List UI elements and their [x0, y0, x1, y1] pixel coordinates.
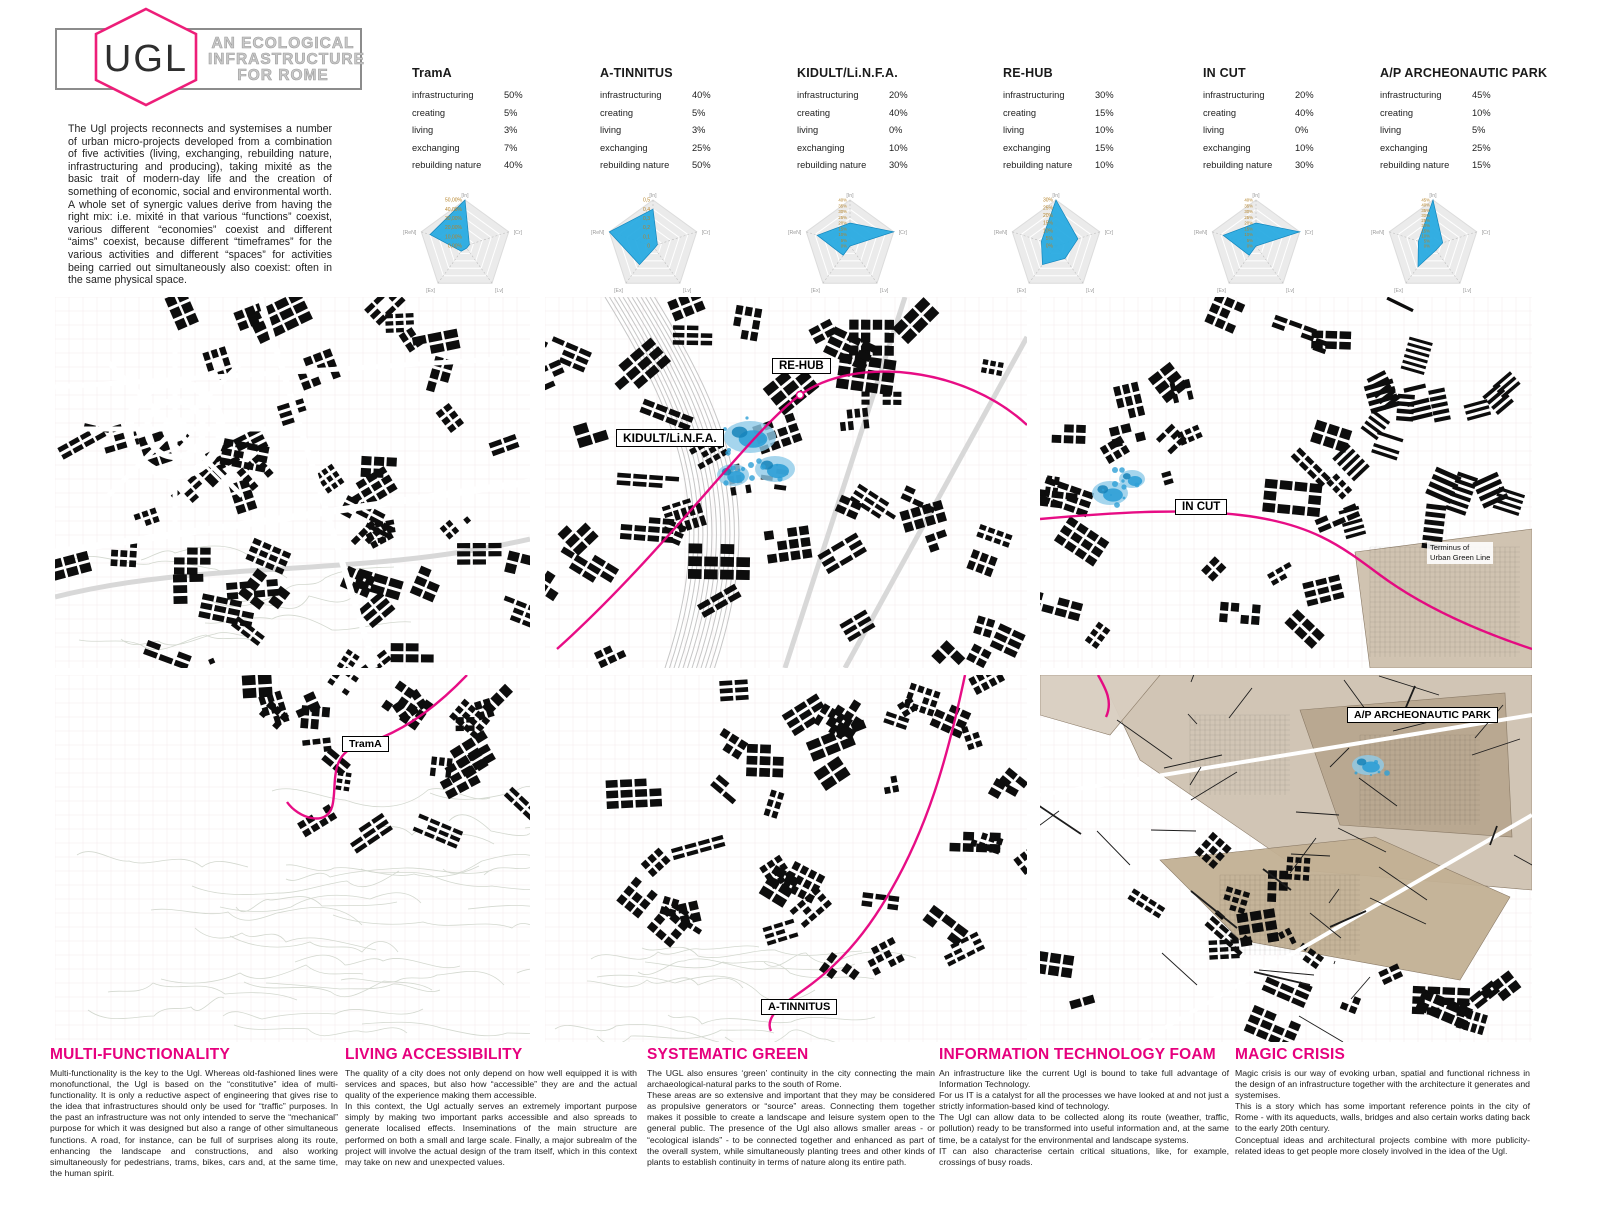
metric-value: 50% [504, 90, 554, 108]
svg-text:5%: 5% [1247, 238, 1253, 243]
section-column: MULTI-FUNCTIONALITYMulti-functionality i… [50, 1046, 338, 1179]
svg-text:15%: 15% [1043, 221, 1054, 227]
map-panel-3 [1040, 297, 1532, 668]
radar-chart: 50,00%40,00%30,00%20,00%10,00%0,00%[In][… [400, 190, 530, 298]
metric-label: living [600, 125, 692, 143]
metric-label: living [1003, 125, 1095, 143]
metric-label: living [1203, 125, 1295, 143]
svg-text:35%: 35% [1244, 203, 1253, 208]
svg-text:0,00%: 0,00% [448, 244, 463, 250]
metric-label: creating [1380, 108, 1472, 126]
metric-value: 0% [1295, 125, 1345, 143]
radar-chart: 30%25%20%15%10%5%0%[In][Cr][Lv][Ex][ReN] [991, 190, 1121, 298]
project-column: A/P ARCHEONAUTIC PARKinfrastructuring45%… [1380, 66, 1595, 178]
metric-label: exchanging [1003, 143, 1095, 161]
metric-row: infrastructuring50% [412, 90, 627, 108]
metric-value: 10% [1295, 143, 1345, 161]
svg-text:5%: 5% [1046, 236, 1054, 242]
metric-value: 40% [889, 108, 939, 126]
svg-text:10%: 10% [1244, 232, 1253, 237]
metric-value: 15% [1472, 160, 1522, 178]
metric-label: exchanging [1380, 143, 1472, 161]
section-column: LIVING ACCESSIBILITYThe quality of a cit… [345, 1046, 637, 1168]
section-body: The quality of a city does not only depe… [345, 1068, 637, 1168]
metric-label: infrastructuring [600, 90, 692, 108]
metric-label: infrastructuring [1380, 90, 1472, 108]
svg-text:30%: 30% [838, 209, 847, 214]
logo-subtitle-line: AN ECOLOGICAL [208, 36, 358, 52]
svg-text:20,00%: 20,00% [445, 225, 463, 231]
metric-row: creating5% [600, 108, 815, 126]
svg-text:20%: 20% [838, 221, 847, 226]
metric-value: 45% [1472, 90, 1522, 108]
svg-text:[Ex]: [Ex] [1217, 288, 1226, 294]
project-title: KIDULT/Li.N.F.A. [797, 66, 1012, 80]
metric-label: creating [1003, 108, 1095, 126]
svg-text:[ReN]: [ReN] [994, 230, 1008, 236]
logo-text: UGL [104, 38, 188, 80]
map-label: IN CUT [1175, 499, 1227, 515]
section-body: Multi-functionality is the key to the Ug… [50, 1068, 338, 1179]
metric-label: creating [600, 108, 692, 126]
metric-value: 40% [692, 90, 742, 108]
svg-text:0,4: 0,4 [643, 207, 650, 213]
svg-text:25%: 25% [1244, 215, 1253, 220]
svg-text:[Lv]: [Lv] [495, 288, 504, 294]
svg-text:[ReN]: [ReN] [788, 230, 802, 236]
project-column: TramAinfrastructuring50%creating5%living… [412, 66, 627, 178]
svg-text:10%: 10% [838, 232, 847, 237]
metric-row: rebuilding nature40% [412, 160, 627, 178]
svg-text:5%: 5% [841, 238, 847, 243]
svg-text:50,00%: 50,00% [445, 198, 463, 204]
ugl-hexagon-logo-icon: UGL [88, 7, 204, 107]
svg-text:30%: 30% [1244, 209, 1253, 214]
project-column: A-TINNITUSinfrastructuring40%creating5%l… [600, 66, 815, 178]
metric-label: exchanging [1203, 143, 1295, 161]
metric-value: 5% [1472, 125, 1522, 143]
section-title: SYSTEMATIC GREEN [647, 1046, 935, 1064]
metric-row: infrastructuring20% [797, 90, 1012, 108]
metric-row: rebuilding nature15% [1380, 160, 1595, 178]
svg-text:[Lv]: [Lv] [1286, 288, 1295, 294]
svg-text:0,1: 0,1 [643, 234, 650, 240]
metric-row: creating10% [1380, 108, 1595, 126]
metric-row: living3% [600, 125, 815, 143]
svg-text:[Lv]: [Lv] [880, 288, 889, 294]
metric-value: 40% [1295, 108, 1345, 126]
section-title: INFORMATION TECHNOLOGY FOAM [939, 1046, 1229, 1064]
section-title: LIVING ACCESSIBILITY [345, 1046, 637, 1064]
metric-label: infrastructuring [412, 90, 504, 108]
metric-row: exchanging25% [1380, 143, 1595, 161]
svg-text:[Cr]: [Cr] [514, 230, 523, 236]
poster-page: UGL AN ECOLOGICAL INFRASTRUCTURE FOR ROM… [0, 0, 1609, 1206]
map-label: A/P ARCHEONAUTIC PARK [1347, 707, 1498, 723]
svg-text:[ReN]: [ReN] [591, 230, 605, 236]
metric-value: 7% [504, 143, 554, 161]
svg-text:0%: 0% [1424, 244, 1430, 249]
metric-value: 20% [1295, 90, 1345, 108]
section-title: MULTI-FUNCTIONALITY [50, 1046, 338, 1064]
metric-row: infrastructuring45% [1380, 90, 1595, 108]
svg-text:[ReN]: [ReN] [1371, 230, 1385, 236]
svg-text:0,3: 0,3 [643, 216, 650, 222]
metric-label: living [797, 125, 889, 143]
svg-text:[Cr]: [Cr] [702, 230, 711, 236]
svg-text:0%: 0% [1046, 244, 1054, 250]
svg-text:[Cr]: [Cr] [899, 230, 908, 236]
metric-row: infrastructuring40% [600, 90, 815, 108]
radar-chart: 40%35%30%25%20%15%10%5%0%[In][Cr][Lv][Ex… [1191, 190, 1321, 298]
map-panel-5 [545, 675, 1027, 1042]
metric-value: 10% [889, 143, 939, 161]
section-column: SYSTEMATIC GREENThe UGL also ensures ‘gr… [647, 1046, 935, 1168]
svg-text:[In]: [In] [846, 193, 854, 199]
svg-text:40,00%: 40,00% [445, 207, 463, 213]
section-body: The UGL also ensures ‘green’ continuity … [647, 1068, 935, 1168]
metric-label: exchanging [600, 143, 692, 161]
metric-value: 5% [692, 108, 742, 126]
metric-value: 15% [1095, 143, 1145, 161]
metric-row: living0% [797, 125, 1012, 143]
metric-label: exchanging [797, 143, 889, 161]
metric-row: creating15% [1003, 108, 1218, 126]
svg-text:0%: 0% [841, 244, 847, 249]
metric-value: 30% [1295, 160, 1345, 178]
svg-text:10,00%: 10,00% [445, 234, 463, 240]
project-title: A-TINNITUS [600, 66, 815, 80]
metric-value: 30% [1095, 90, 1145, 108]
metric-label: rebuilding nature [1203, 160, 1295, 178]
map-label: TramA [342, 736, 389, 752]
svg-text:[ReN]: [ReN] [1194, 230, 1208, 236]
metric-value: 3% [692, 125, 742, 143]
section-body: Magic crisis is our way of evoking urban… [1235, 1068, 1530, 1157]
metric-label: rebuilding nature [1380, 160, 1472, 178]
metric-label: creating [412, 108, 504, 126]
metric-row: rebuilding nature10% [1003, 160, 1218, 178]
map-label: RE-HUB [772, 358, 831, 374]
metric-row: living3% [412, 125, 627, 143]
logo-subtitle-line: FOR ROME [208, 68, 358, 84]
metric-value: 50% [692, 160, 742, 178]
svg-text:[ReN]: [ReN] [403, 230, 417, 236]
metric-row: creating5% [412, 108, 627, 126]
svg-text:[Cr]: [Cr] [1105, 230, 1114, 236]
svg-text:20%: 20% [1244, 221, 1253, 226]
section-column: INFORMATION TECHNOLOGY FOAMAn infrastruc… [939, 1046, 1229, 1168]
svg-text:[In]: [In] [1052, 193, 1060, 199]
intro-paragraph: The Ugl projects reconnects and systemis… [68, 123, 332, 287]
metric-value: 20% [889, 90, 939, 108]
svg-text:25%: 25% [1043, 205, 1054, 211]
metric-value: 40% [504, 160, 554, 178]
metric-label: exchanging [412, 143, 504, 161]
map-label: A-TINNITUS [761, 999, 837, 1015]
svg-text:0%: 0% [1247, 244, 1253, 249]
map-panel-4 [55, 675, 530, 1042]
svg-text:[In]: [In] [1252, 193, 1260, 199]
svg-text:[Ex]: [Ex] [614, 288, 623, 294]
svg-text:[Lv]: [Lv] [1086, 288, 1095, 294]
metric-row: exchanging15% [1003, 143, 1218, 161]
svg-text:35%: 35% [838, 203, 847, 208]
svg-text:25%: 25% [838, 215, 847, 220]
metric-row: living10% [1003, 125, 1218, 143]
metric-row: exchanging7% [412, 143, 627, 161]
metric-value: 10% [1095, 160, 1145, 178]
metric-label: rebuilding nature [600, 160, 692, 178]
metric-row: rebuilding nature30% [797, 160, 1012, 178]
metric-row: exchanging25% [600, 143, 815, 161]
svg-text:0,2: 0,2 [643, 225, 650, 231]
logo-subtitle-line: INFRASTRUCTURE [208, 52, 358, 68]
metric-label: living [412, 125, 504, 143]
metric-label: infrastructuring [1003, 90, 1095, 108]
project-column: RE-HUBinfrastructuring30%creating15%livi… [1003, 66, 1218, 178]
metric-row: rebuilding nature50% [600, 160, 815, 178]
svg-text:[Cr]: [Cr] [1482, 230, 1491, 236]
svg-text:15%: 15% [1244, 226, 1253, 231]
svg-text:30,00%: 30,00% [445, 216, 463, 222]
radar-chart: 40%35%30%25%20%15%10%5%0%[In][Cr][Lv][Ex… [785, 190, 915, 298]
map-panel-1 [55, 297, 530, 668]
svg-text:[Ex]: [Ex] [1017, 288, 1026, 294]
metric-value: 25% [1472, 143, 1522, 161]
map-panel-6 [1040, 675, 1532, 1042]
metric-value: 25% [692, 143, 742, 161]
map-panel-2 [545, 297, 1027, 668]
metric-value: 3% [504, 125, 554, 143]
metric-value: 30% [889, 160, 939, 178]
project-title: TramA [412, 66, 627, 80]
project-title: RE-HUB [1003, 66, 1218, 80]
metric-row: exchanging10% [797, 143, 1012, 161]
metric-row: creating40% [797, 108, 1012, 126]
map-note-terminus: Terminus of Urban Green Line [1427, 542, 1493, 564]
radar-chart: 0,50,40,30,20,10[In][Cr][Lv][Ex][ReN] [588, 190, 718, 298]
metric-label: rebuilding nature [797, 160, 889, 178]
svg-text:[Ex]: [Ex] [811, 288, 820, 294]
svg-text:[Lv]: [Lv] [683, 288, 692, 294]
section-title: MAGIC CRISIS [1235, 1046, 1530, 1064]
project-title: A/P ARCHEONAUTIC PARK [1380, 66, 1595, 80]
section-column: MAGIC CRISISMagic crisis is our way of e… [1235, 1046, 1530, 1157]
metric-label: creating [797, 108, 889, 126]
metric-label: rebuilding nature [1003, 160, 1095, 178]
svg-text:0: 0 [647, 244, 650, 250]
metric-value: 10% [1472, 108, 1522, 126]
metric-label: infrastructuring [1203, 90, 1295, 108]
metric-label: rebuilding nature [412, 160, 504, 178]
svg-text:[In]: [In] [1429, 193, 1437, 199]
logo-subtitle: AN ECOLOGICAL INFRASTRUCTURE FOR ROME [208, 36, 358, 84]
section-body: An infrastructure like the current Ugl i… [939, 1068, 1229, 1168]
metric-value: 10% [1095, 125, 1145, 143]
metric-value: 15% [1095, 108, 1145, 126]
svg-text:[In]: [In] [649, 193, 657, 199]
metric-label: living [1380, 125, 1472, 143]
metric-value: 0% [889, 125, 939, 143]
metric-label: infrastructuring [797, 90, 889, 108]
svg-text:[Cr]: [Cr] [1305, 230, 1314, 236]
svg-text:[Ex]: [Ex] [426, 288, 435, 294]
metric-label: creating [1203, 108, 1295, 126]
svg-text:[In]: [In] [461, 193, 469, 199]
map-label: KIDULT/Li.N.F.A. [616, 429, 724, 447]
svg-text:[Lv]: [Lv] [1463, 288, 1472, 294]
svg-text:15%: 15% [838, 226, 847, 231]
svg-text:[Ex]: [Ex] [1394, 288, 1403, 294]
metric-row: living5% [1380, 125, 1595, 143]
svg-text:20%: 20% [1043, 213, 1054, 219]
project-column: KIDULT/Li.N.F.A.infrastructuring20%creat… [797, 66, 1012, 178]
metric-row: infrastructuring30% [1003, 90, 1218, 108]
radar-chart: 45%40%35%30%25%20%15%10%5%0%[In][Cr][Lv]… [1368, 190, 1498, 298]
svg-text:10%: 10% [1043, 228, 1054, 234]
metric-value: 5% [504, 108, 554, 126]
